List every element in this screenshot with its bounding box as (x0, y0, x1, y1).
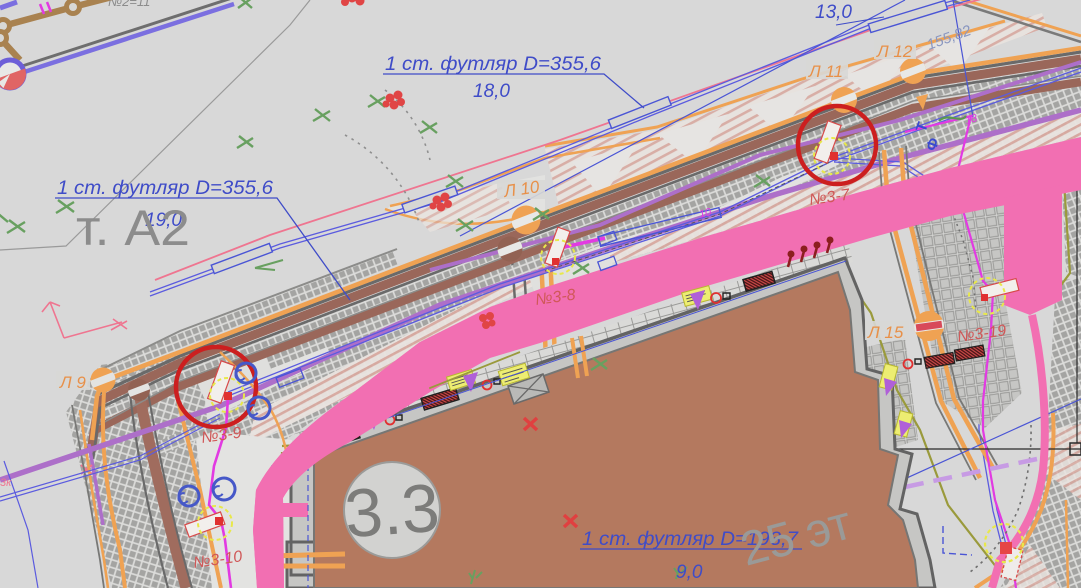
svg-text:13,0: 13,0 (815, 2, 852, 23)
svg-text:№2=11: №2=11 (108, 0, 150, 9)
svg-text:1 ст. футляр D=355,6: 1 ст. футляр D=355,6 (385, 54, 601, 75)
svg-text:9,0: 9,0 (676, 562, 703, 583)
svg-text:т. А2: т. А2 (76, 200, 190, 256)
svg-text:18,0: 18,0 (473, 81, 510, 102)
svg-text:Л 11: Л 11 (808, 62, 843, 81)
svg-text:Л 9: Л 9 (59, 373, 86, 392)
svg-text:Л 15: Л 15 (867, 323, 904, 342)
svg-text:3к: 3к (0, 477, 12, 489)
svg-text:3.3: 3.3 (342, 470, 442, 552)
svg-text:1 ст. футляр D=355,6: 1 ст. футляр D=355,6 (57, 178, 273, 199)
svg-text:Л 12: Л 12 (876, 42, 913, 61)
